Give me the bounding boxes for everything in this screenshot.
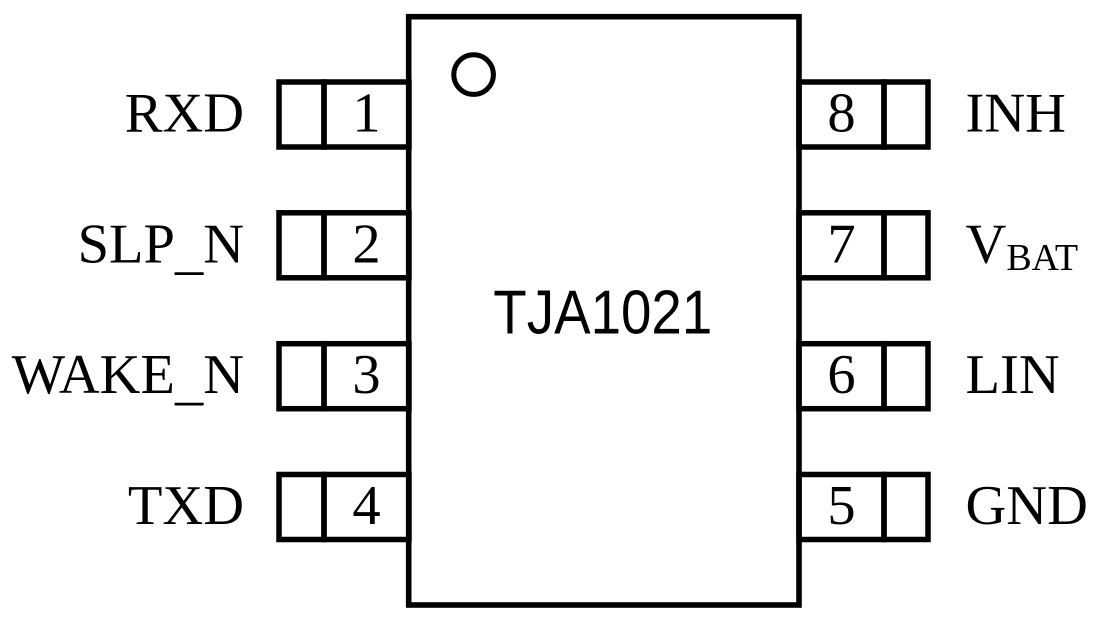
svg-text:2: 2: [352, 213, 380, 275]
svg-text:LIN: LIN: [966, 344, 1060, 406]
svg-text:TJA1021: TJA1021: [493, 279, 712, 348]
svg-text:8: 8: [827, 83, 855, 145]
svg-text:WAKE_N: WAKE_N: [12, 344, 244, 412]
svg-text:3: 3: [352, 344, 380, 406]
svg-text:TXD: TXD: [128, 475, 244, 537]
svg-text:7: 7: [827, 213, 855, 275]
svg-text:6: 6: [827, 344, 855, 406]
svg-text:4: 4: [352, 475, 380, 537]
svg-text:INH: INH: [966, 83, 1066, 145]
svg-text:VBAT: VBAT: [966, 213, 1079, 279]
svg-text:SLP_N: SLP_N: [78, 213, 244, 281]
svg-text:1: 1: [352, 83, 380, 145]
svg-text:5: 5: [827, 475, 855, 537]
svg-text:GND: GND: [966, 475, 1088, 537]
svg-text:RXD: RXD: [125, 83, 244, 145]
